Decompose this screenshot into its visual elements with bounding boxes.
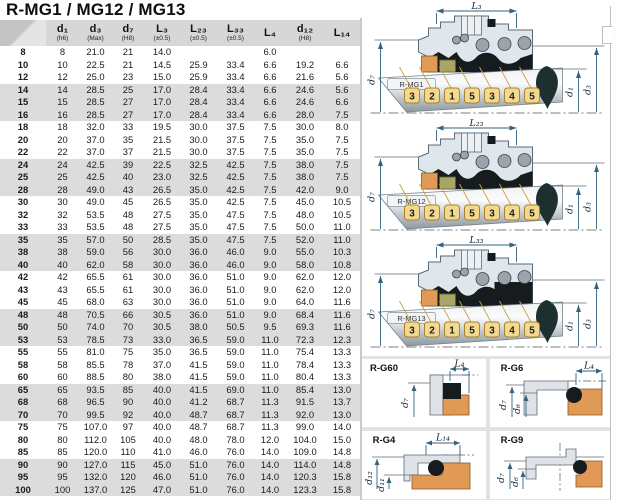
table-row: 585885.57837.041.559.011.078.413.3 — [0, 359, 360, 372]
value-cell: 39 — [112, 159, 144, 172]
value-cell: 13.3 — [324, 359, 360, 372]
value-cell: 38 — [46, 246, 79, 259]
value-cell: 33 — [112, 121, 144, 134]
value-cell: 76.0 — [217, 459, 254, 472]
value-cell: 53.5 — [79, 221, 112, 234]
value-cell: 51.0 — [180, 459, 217, 472]
value-cell: 60 — [46, 371, 79, 384]
column-header-tolerance: (h6) — [46, 35, 79, 43]
value-cell: 52.0 — [286, 234, 324, 247]
value-cell: 68.0 — [79, 296, 112, 309]
value-cell: 48.0 — [286, 209, 324, 222]
seat-length-label: L₄ — [583, 361, 594, 372]
value-cell: 137.0 — [79, 484, 112, 497]
value-cell: 12.3 — [324, 334, 360, 347]
value-cell: 22.5 — [144, 159, 180, 172]
outer-diameter-label: d₃ — [583, 202, 594, 212]
value-cell: 30.0 — [144, 246, 180, 259]
value-cell: 51.0 — [180, 471, 217, 484]
value-cell: 12 — [46, 71, 79, 84]
value-cell: 7.5 — [254, 146, 286, 159]
value-cell: 58.0 — [286, 259, 324, 272]
row-size-cell: 95 — [0, 471, 46, 484]
value-cell: 92 — [112, 409, 144, 422]
dimensions-table: d₁(h6)d₃(Max)d₇(H8)L₃(±0.5)L₂₃(±0.5)L₃₃(… — [0, 20, 360, 496]
diagram-r-mg1: R-MG1 3215345 L₃ d₇ d₁ d₃ — [362, 2, 612, 118]
value-cell: 59.0 — [79, 246, 112, 259]
value-cell: 25 — [112, 84, 144, 97]
value-cell: 27 — [112, 109, 144, 122]
value-cell: 49.0 — [79, 196, 112, 209]
row-size-cell: 65 — [0, 384, 46, 397]
table-row: 535378.57333.036.559.011.072.312.3 — [0, 334, 360, 347]
value-cell: 46.0 — [144, 471, 180, 484]
value-cell: 11.6 — [324, 309, 360, 322]
value-cell: 28.5 — [79, 84, 112, 97]
table-row: 282849.04326.535.042.57.542.09.0 — [0, 184, 360, 197]
value-cell: 28.4 — [180, 96, 217, 109]
column-header-tolerance: (±0.5) — [144, 35, 180, 43]
value-cell: 36.0 — [180, 246, 217, 259]
diagram-name-label: R-G4 — [373, 435, 396, 446]
value-cell: 76.0 — [217, 471, 254, 484]
value-cell: 37.0 — [144, 359, 180, 372]
seat-bore-label: d₁₂ — [364, 471, 375, 485]
value-cell: 36.0 — [180, 259, 217, 272]
value-cell: 69.0 — [217, 384, 254, 397]
row-size-cell: 40 — [0, 259, 46, 272]
value-cell: 27.5 — [144, 221, 180, 234]
table-row: 9090127.011545.051.076.014.0114.014.8 — [0, 459, 360, 472]
value-cell: 55 — [46, 346, 79, 359]
value-cell: 74.0 — [79, 321, 112, 334]
length-dimension-label: L₂₃ — [469, 119, 484, 129]
table-row: 606088.58038.041.559.011.080.413.3 — [0, 371, 360, 384]
value-cell: 40.0 — [144, 421, 180, 434]
value-cell: 72.3 — [286, 334, 324, 347]
value-cell: 8.0 — [324, 121, 360, 134]
value-cell: 13.3 — [324, 371, 360, 384]
value-cell: 76.0 — [217, 484, 254, 497]
row-size-cell: 35 — [0, 234, 46, 247]
value-cell: 41.5 — [180, 384, 217, 397]
column-header: L₁₄ — [324, 20, 360, 46]
value-cell: 11.6 — [324, 321, 360, 334]
table-row: 686896.59040.041.268.711.391.513.7 — [0, 396, 360, 409]
value-cell: 13.0 — [324, 409, 360, 422]
diagram-r-g9: R-G9 d₇ d₆ — [490, 431, 615, 499]
value-cell: 90 — [112, 396, 144, 409]
value-cell: 11.0 — [254, 359, 286, 372]
value-cell: 43 — [112, 184, 144, 197]
value-cell: 30 — [46, 196, 79, 209]
value-cell: 7.5 — [254, 196, 286, 209]
value-cell: 37.5 — [217, 146, 254, 159]
value-cell: 57.0 — [79, 234, 112, 247]
value-cell: 42 — [46, 271, 79, 284]
part-number: 4 — [509, 326, 515, 337]
value-cell: 50 — [112, 234, 144, 247]
seat-section: R-G4 L₁₄ d₁₂ d₁₁ — [362, 431, 486, 499]
value-cell: 35.0 — [180, 209, 217, 222]
value-cell: 37.5 — [217, 134, 254, 147]
row-size-cell: 20 — [0, 134, 46, 147]
value-cell: 46.0 — [180, 446, 217, 459]
value-cell: 11.3 — [254, 421, 286, 434]
value-cell: 28.5 — [79, 96, 112, 109]
row-size-cell: 75 — [0, 421, 46, 434]
value-cell: 46.0 — [217, 246, 254, 259]
value-cell: 75 — [46, 421, 79, 434]
value-cell: 7.5 — [254, 159, 286, 172]
value-cell: 114.0 — [286, 459, 324, 472]
row-size-cell: 60 — [0, 371, 46, 384]
value-cell: 59.0 — [217, 346, 254, 359]
table-row: 424265.56130.036.051.09.062.012.0 — [0, 271, 360, 284]
table-row: 555581.07535.036.559.011.075.413.3 — [0, 346, 360, 359]
value-cell: 85.5 — [79, 359, 112, 372]
value-cell: 30.0 — [144, 296, 180, 309]
value-cell: 35 — [112, 134, 144, 147]
value-cell: 25.9 — [180, 71, 217, 84]
part-number: 2 — [429, 92, 435, 103]
value-cell: 99.5 — [79, 409, 112, 422]
value-cell: 14.0 — [144, 46, 180, 59]
value-cell: 68.7 — [217, 409, 254, 422]
value-cell: 70.5 — [79, 309, 112, 322]
value-cell: 19.5 — [144, 121, 180, 134]
column-header-label: d₃ — [79, 24, 112, 35]
diagram-name-label: R-G6 — [501, 363, 524, 374]
value-cell: 41.2 — [180, 396, 217, 409]
value-cell: 35.0 — [180, 221, 217, 234]
value-cell: 33.4 — [217, 71, 254, 84]
value-cell: 7.5 — [324, 109, 360, 122]
value-cell: 42.5 — [217, 196, 254, 209]
value-cell: 42.5 — [217, 171, 254, 184]
value-cell: 7.5 — [254, 121, 286, 134]
bore-dimension-label: d₇ — [367, 75, 378, 85]
value-cell: 28.4 — [180, 109, 217, 122]
value-cell: 33 — [46, 221, 79, 234]
value-cell: 5.6 — [324, 71, 360, 84]
value-cell: 40.0 — [144, 434, 180, 447]
value-cell: 26.5 — [144, 184, 180, 197]
value-cell: 48.7 — [180, 421, 217, 434]
part-number: 3 — [489, 92, 495, 103]
value-cell: 7.5 — [324, 134, 360, 147]
row-size-cell: 25 — [0, 171, 46, 184]
row-size-cell: 12 — [0, 71, 46, 84]
table-row: 434365.56130.036.051.09.062.012.0 — [0, 284, 360, 297]
value-cell: 62.0 — [79, 259, 112, 272]
value-cell: 38.0 — [180, 321, 217, 334]
table-row: 141428.52517.028.433.46.624.65.6 — [0, 84, 360, 97]
seat-bore-label: d₇ — [400, 398, 411, 408]
value-cell: 125 — [112, 484, 144, 497]
value-cell: 32 — [46, 209, 79, 222]
length-dimension-label: L₃₃ — [469, 236, 484, 246]
value-cell: 6.6 — [324, 59, 360, 72]
value-cell: 21.6 — [286, 71, 324, 84]
value-cell: 37.5 — [217, 121, 254, 134]
part-number: 4 — [509, 92, 515, 103]
diagram-r-g4: R-G4 L₁₄ d₁₂ d₁₁ — [362, 431, 486, 499]
value-cell: 65 — [46, 384, 79, 397]
value-cell: 15.8 — [324, 484, 360, 497]
value-cell: 51.0 — [217, 296, 254, 309]
value-cell: 12.0 — [254, 434, 286, 447]
value-cell: 51.0 — [217, 271, 254, 284]
table-row: 252542.54023.032.542.57.538.07.5 — [0, 171, 360, 184]
value-cell: 7.5 — [254, 134, 286, 147]
part-number: 4 — [509, 209, 515, 220]
value-cell: 5.6 — [324, 84, 360, 97]
value-cell: 6.6 — [254, 71, 286, 84]
value-cell: 123.3 — [286, 484, 324, 497]
value-cell: 17.0 — [144, 84, 180, 97]
value-cell: 10.8 — [324, 259, 360, 272]
value-cell: 15.0 — [144, 71, 180, 84]
diagram-name-label: R-G60 — [370, 363, 398, 374]
inner-diameter-label: d₁ — [565, 87, 576, 97]
column-header: d₁₂(H8) — [286, 20, 324, 46]
table-row: 8585120.011041.046.076.014.0109.014.8 — [0, 446, 360, 459]
inner-diameter-label: d₁ — [565, 204, 576, 214]
table-row: 353557.05028.535.047.57.552.011.0 — [0, 234, 360, 247]
value-cell: 40.0 — [144, 396, 180, 409]
value-cell — [217, 46, 254, 59]
value-cell: 15.8 — [324, 471, 360, 484]
outer-diameter-label: d₃ — [583, 319, 594, 329]
value-cell: 99.0 — [286, 421, 324, 434]
table-row: 303049.04526.535.042.57.545.010.5 — [0, 196, 360, 209]
seat-section: R-G9 d₇ d₆ — [490, 431, 614, 499]
value-cell: 80 — [112, 371, 144, 384]
value-cell: 35 — [46, 234, 79, 247]
value-cell: 28.0 — [286, 109, 324, 122]
value-cell: 37 — [112, 146, 144, 159]
value-cell: 43 — [46, 284, 79, 297]
value-cell: 23.0 — [144, 171, 180, 184]
value-cell: 12.0 — [324, 284, 360, 297]
value-cell: 27 — [112, 96, 144, 109]
value-cell: 21 — [112, 59, 144, 72]
inner-diameter-label: d₁ — [565, 321, 576, 331]
value-cell: 21.5 — [144, 134, 180, 147]
row-size-cell: 15 — [0, 96, 46, 109]
row-size-cell: 28 — [0, 184, 46, 197]
value-cell: 30.5 — [144, 309, 180, 322]
value-cell: 6.6 — [254, 84, 286, 97]
column-header-label: d₁ — [46, 24, 79, 35]
part-number: 1 — [449, 209, 455, 220]
value-cell: 48.0 — [180, 434, 217, 447]
value-cell: 24.6 — [286, 84, 324, 97]
value-cell: 35.0 — [180, 234, 217, 247]
value-cell: 35.0 — [286, 146, 324, 159]
row-size-cell: 14 — [0, 84, 46, 97]
value-cell: 30.0 — [180, 146, 217, 159]
table-row: 181832.03319.530.037.57.530.08.0 — [0, 121, 360, 134]
value-cell: 11.3 — [254, 409, 286, 422]
row-size-cell: 80 — [0, 434, 46, 447]
value-cell: 64.0 — [286, 296, 324, 309]
value-cell: 85 — [112, 384, 144, 397]
value-cell: 78.4 — [286, 359, 324, 372]
value-cell: 15 — [46, 96, 79, 109]
value-cell: 18 — [46, 121, 79, 134]
outer-diameter-label: d₃ — [583, 85, 594, 95]
value-cell: 30.0 — [144, 271, 180, 284]
value-cell: 68 — [46, 396, 79, 409]
value-cell: 68.4 — [286, 309, 324, 322]
part-number: 5 — [529, 326, 535, 337]
value-cell: 80 — [46, 434, 79, 447]
panel-notch-decoration — [602, 26, 612, 44]
row-size-cell: 68 — [0, 396, 46, 409]
value-cell: 12.0 — [324, 271, 360, 284]
value-cell: 27.5 — [144, 209, 180, 222]
value-cell: 25 — [46, 171, 79, 184]
value-cell: 36.0 — [180, 296, 217, 309]
bore-dimension-label: d₇ — [367, 309, 378, 319]
row-size-cell: 16 — [0, 109, 46, 122]
value-cell: 7.5 — [254, 171, 286, 184]
value-cell: 35.0 — [286, 134, 324, 147]
diagram-r-mg13: R-MG13 3215345 L₃₃ d₇ d₁ d₃ — [362, 236, 612, 352]
row-size-cell: 24 — [0, 159, 46, 172]
value-cell: 76.0 — [217, 446, 254, 459]
value-cell: 11.0 — [254, 384, 286, 397]
value-cell: 17.0 — [144, 96, 180, 109]
table-row: 8821.02114.06.0 — [0, 46, 360, 59]
value-cell: 38.0 — [144, 371, 180, 384]
value-cell: 8 — [46, 46, 79, 59]
value-cell: 47.5 — [217, 209, 254, 222]
value-cell: 42.5 — [217, 159, 254, 172]
value-cell: 36.0 — [180, 284, 217, 297]
value-cell: 59.0 — [217, 359, 254, 372]
value-cell: 80.4 — [286, 371, 324, 384]
value-cell: 120.0 — [79, 446, 112, 459]
value-cell — [286, 46, 324, 59]
value-cell: 42.5 — [79, 159, 112, 172]
table-row: 202037.03521.530.037.57.535.07.5 — [0, 134, 360, 147]
column-header-tolerance: (±0.5) — [217, 35, 254, 43]
column-header: L₃(±0.5) — [144, 20, 180, 46]
value-cell: 9.0 — [254, 259, 286, 272]
row-size-cell: 45 — [0, 296, 46, 309]
diagram-name-label: R-G9 — [501, 435, 524, 446]
row-size-cell: 38 — [0, 246, 46, 259]
value-cell: 85 — [46, 446, 79, 459]
value-cell: 45 — [46, 296, 79, 309]
row-size-cell: 53 — [0, 334, 46, 347]
table-row: 121225.02315.025.933.46.621.65.6 — [0, 71, 360, 84]
value-cell: 14.8 — [324, 459, 360, 472]
value-cell: 36.0 — [180, 271, 217, 284]
value-cell: 7.5 — [254, 209, 286, 222]
value-cell: 120.3 — [286, 471, 324, 484]
column-header-label: L₃ — [144, 24, 180, 35]
row-size-cell: 48 — [0, 309, 46, 322]
seat-diagrams-grid: R-G60 L₄ d₇ R-G6 L₄ d₇ d₆ R-G4 — [362, 356, 617, 500]
column-header: L₃₃(±0.5) — [217, 20, 254, 46]
table-row: 100100137.012547.051.076.014.0123.315.8 — [0, 484, 360, 497]
value-cell: 47.5 — [217, 234, 254, 247]
value-cell: 100 — [46, 484, 79, 497]
table-row: 7575107.09740.048.768.711.399.014.0 — [0, 421, 360, 434]
value-cell: 66 — [112, 309, 144, 322]
value-cell: 11.3 — [254, 396, 286, 409]
value-cell: 30.5 — [144, 321, 180, 334]
value-cell: 30.0 — [144, 284, 180, 297]
table-row: 9595132.012046.051.076.014.0120.315.8 — [0, 471, 360, 484]
seat-bore-label: d₇ — [498, 400, 509, 410]
table-row: 151528.52717.028.433.46.624.66.6 — [0, 96, 360, 109]
value-cell: 47.0 — [144, 484, 180, 497]
value-cell: 127.0 — [79, 459, 112, 472]
value-cell: 62.0 — [286, 271, 324, 284]
value-cell: 22.5 — [79, 59, 112, 72]
seat-length-label: L₁₄ — [435, 433, 450, 444]
value-cell: 41.5 — [180, 359, 217, 372]
value-cell: 92.0 — [286, 409, 324, 422]
value-cell: 30.0 — [180, 121, 217, 134]
value-cell: 48 — [46, 309, 79, 322]
value-cell: 9.5 — [254, 321, 286, 334]
value-cell: 56 — [112, 246, 144, 259]
value-cell: 14.0 — [254, 446, 286, 459]
value-cell: 85.4 — [286, 384, 324, 397]
row-size-cell: 50 — [0, 321, 46, 334]
value-cell: 7.5 — [324, 171, 360, 184]
value-cell: 61 — [112, 284, 144, 297]
value-cell: 21 — [112, 46, 144, 59]
value-cell — [180, 46, 217, 59]
value-cell: 45 — [112, 196, 144, 209]
value-cell: 96.5 — [79, 396, 112, 409]
diagram-r-mg12: R-MG12 3215345 L₂₃ d₇ d₁ d₃ — [362, 119, 612, 235]
seal-cross-section: R-MG13 3215345 L₃₃ d₇ d₁ d₃ — [362, 236, 612, 352]
value-cell: 47.5 — [217, 221, 254, 234]
value-cell: 15.0 — [324, 434, 360, 447]
diagrams-panel: R-MG1 3215345 L₃ d₇ d₁ d₃ R-MG1 — [362, 0, 617, 500]
value-cell: 19.2 — [286, 59, 324, 72]
value-cell: 6.0 — [254, 46, 286, 59]
value-cell — [324, 46, 360, 59]
value-cell: 110 — [112, 446, 144, 459]
value-cell: 14.8 — [324, 446, 360, 459]
column-header: L₄ — [254, 20, 286, 46]
value-cell: 59.0 — [217, 334, 254, 347]
column-header-tolerance: (±0.5) — [180, 35, 217, 43]
value-cell: 25.0 — [79, 71, 112, 84]
value-cell: 51.0 — [180, 484, 217, 497]
value-cell: 40 — [112, 171, 144, 184]
value-cell: 115 — [112, 459, 144, 472]
diagram-r-g60: R-G60 L₄ d₇ — [362, 359, 486, 427]
column-header: L₂₃(±0.5) — [180, 20, 217, 46]
column-header-label: d₇ — [112, 24, 144, 35]
value-cell: 48.7 — [180, 409, 217, 422]
value-cell: 49.0 — [79, 184, 112, 197]
value-cell: 13.0 — [324, 384, 360, 397]
column-header: d₃(Max) — [79, 20, 112, 46]
value-cell: 95 — [46, 471, 79, 484]
value-cell: 33.4 — [217, 109, 254, 122]
